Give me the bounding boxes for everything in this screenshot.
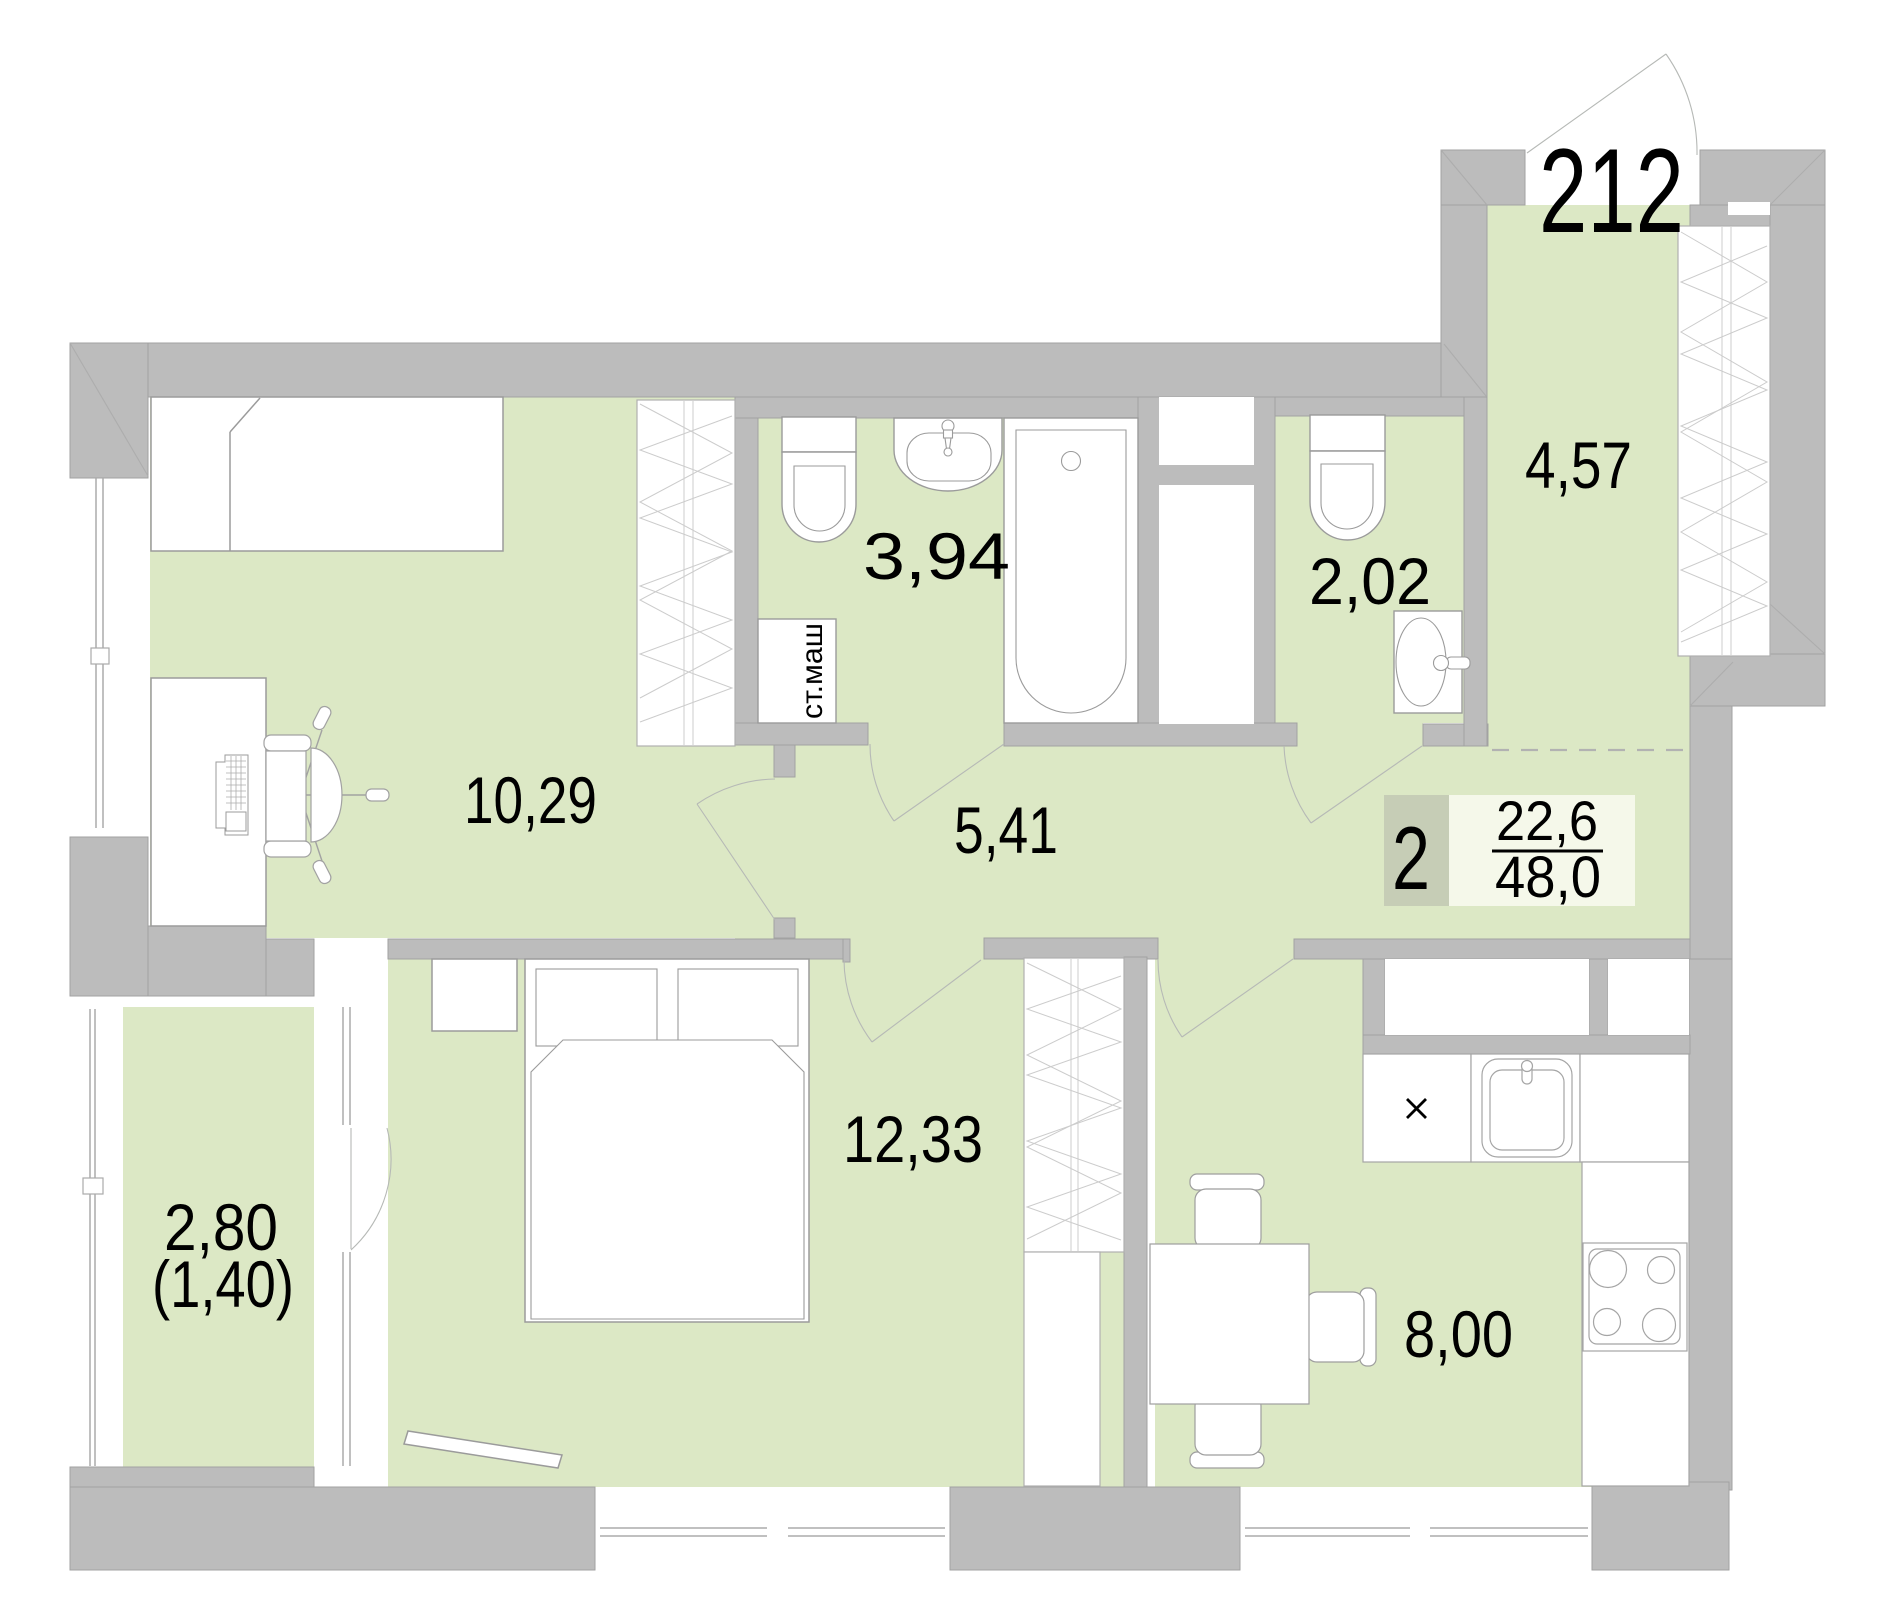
- svg-text:12,33: 12,33: [843, 1102, 983, 1176]
- svg-text:(1,40): (1,40): [152, 1247, 294, 1321]
- svg-text:2,02: 2,02: [1309, 544, 1431, 618]
- svg-text:48,0: 48,0: [1495, 845, 1601, 910]
- svg-text:10,29: 10,29: [464, 763, 597, 837]
- svg-text:5,41: 5,41: [954, 793, 1058, 867]
- svg-text:8,00: 8,00: [1404, 1297, 1513, 1371]
- svg-text:4,57: 4,57: [1525, 428, 1632, 502]
- svg-text:212: 212: [1539, 124, 1684, 258]
- svg-text:2: 2: [1392, 808, 1430, 908]
- svg-text:3,94: 3,94: [863, 519, 1010, 593]
- svg-text:ст.маш: ст.маш: [796, 623, 829, 719]
- svg-text:22,6: 22,6: [1496, 789, 1598, 852]
